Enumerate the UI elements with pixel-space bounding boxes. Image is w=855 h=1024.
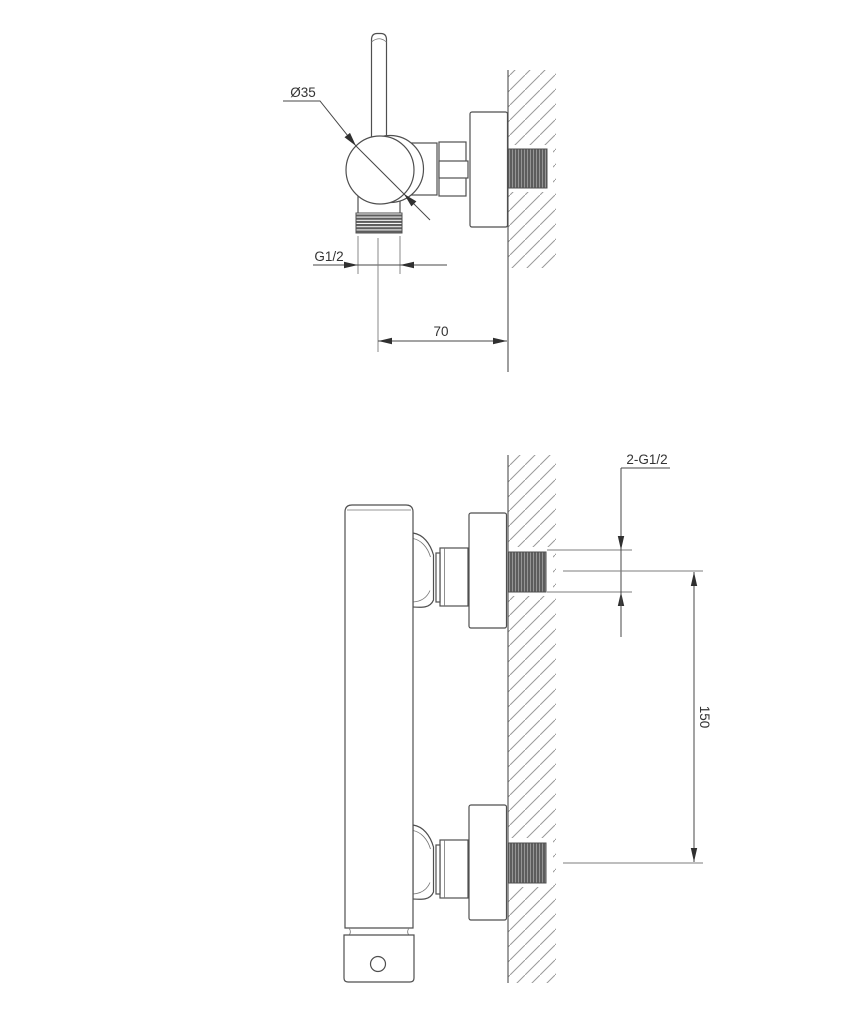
connections-thread-dimension: 2-G1/2: [547, 452, 670, 637]
rim-ring: [436, 845, 440, 894]
lower-wall-thread: [508, 843, 546, 883]
wall-section: [505, 70, 556, 372]
diameter-label: Ø35: [290, 85, 316, 100]
base-block: [344, 935, 414, 982]
upper-connection: [413, 513, 507, 628]
column-base: [344, 929, 414, 982]
connections-label: 2-G1/2: [626, 452, 667, 467]
spacing-label: 150: [697, 706, 712, 729]
upper-wall-thread: [508, 552, 546, 592]
wall-escutcheon: [470, 112, 508, 227]
wall-hatching: [508, 455, 556, 983]
lower-connection: [413, 805, 507, 920]
wall-escutcheon: [469, 805, 507, 920]
outlet-thread-dimension: G1/2: [313, 236, 447, 274]
wall-distance-dimension: 70: [378, 238, 507, 352]
outlet-thread: [356, 213, 402, 233]
column-body: [345, 505, 413, 928]
mixer-column: [344, 505, 414, 982]
wall-section: [505, 455, 556, 983]
connector-pipe: [439, 161, 468, 178]
wall-distance-label: 70: [433, 324, 448, 339]
top-view: Ø35 G1/2 70: [283, 34, 556, 373]
spacing-dimension: 150: [563, 571, 712, 863]
bottom-view: 2-G1/2 150: [344, 452, 712, 983]
technical-drawing-page: Ø35 G1/2 70: [0, 0, 855, 1024]
drawing-canvas: Ø35 G1/2 70: [0, 0, 855, 1024]
wall-escutcheon: [469, 513, 507, 628]
wall-inlet-thread: [508, 149, 547, 188]
valve-assembly: [346, 34, 508, 234]
rim-ring: [436, 553, 440, 602]
outlet-thread-label: G1/2: [314, 249, 343, 264]
